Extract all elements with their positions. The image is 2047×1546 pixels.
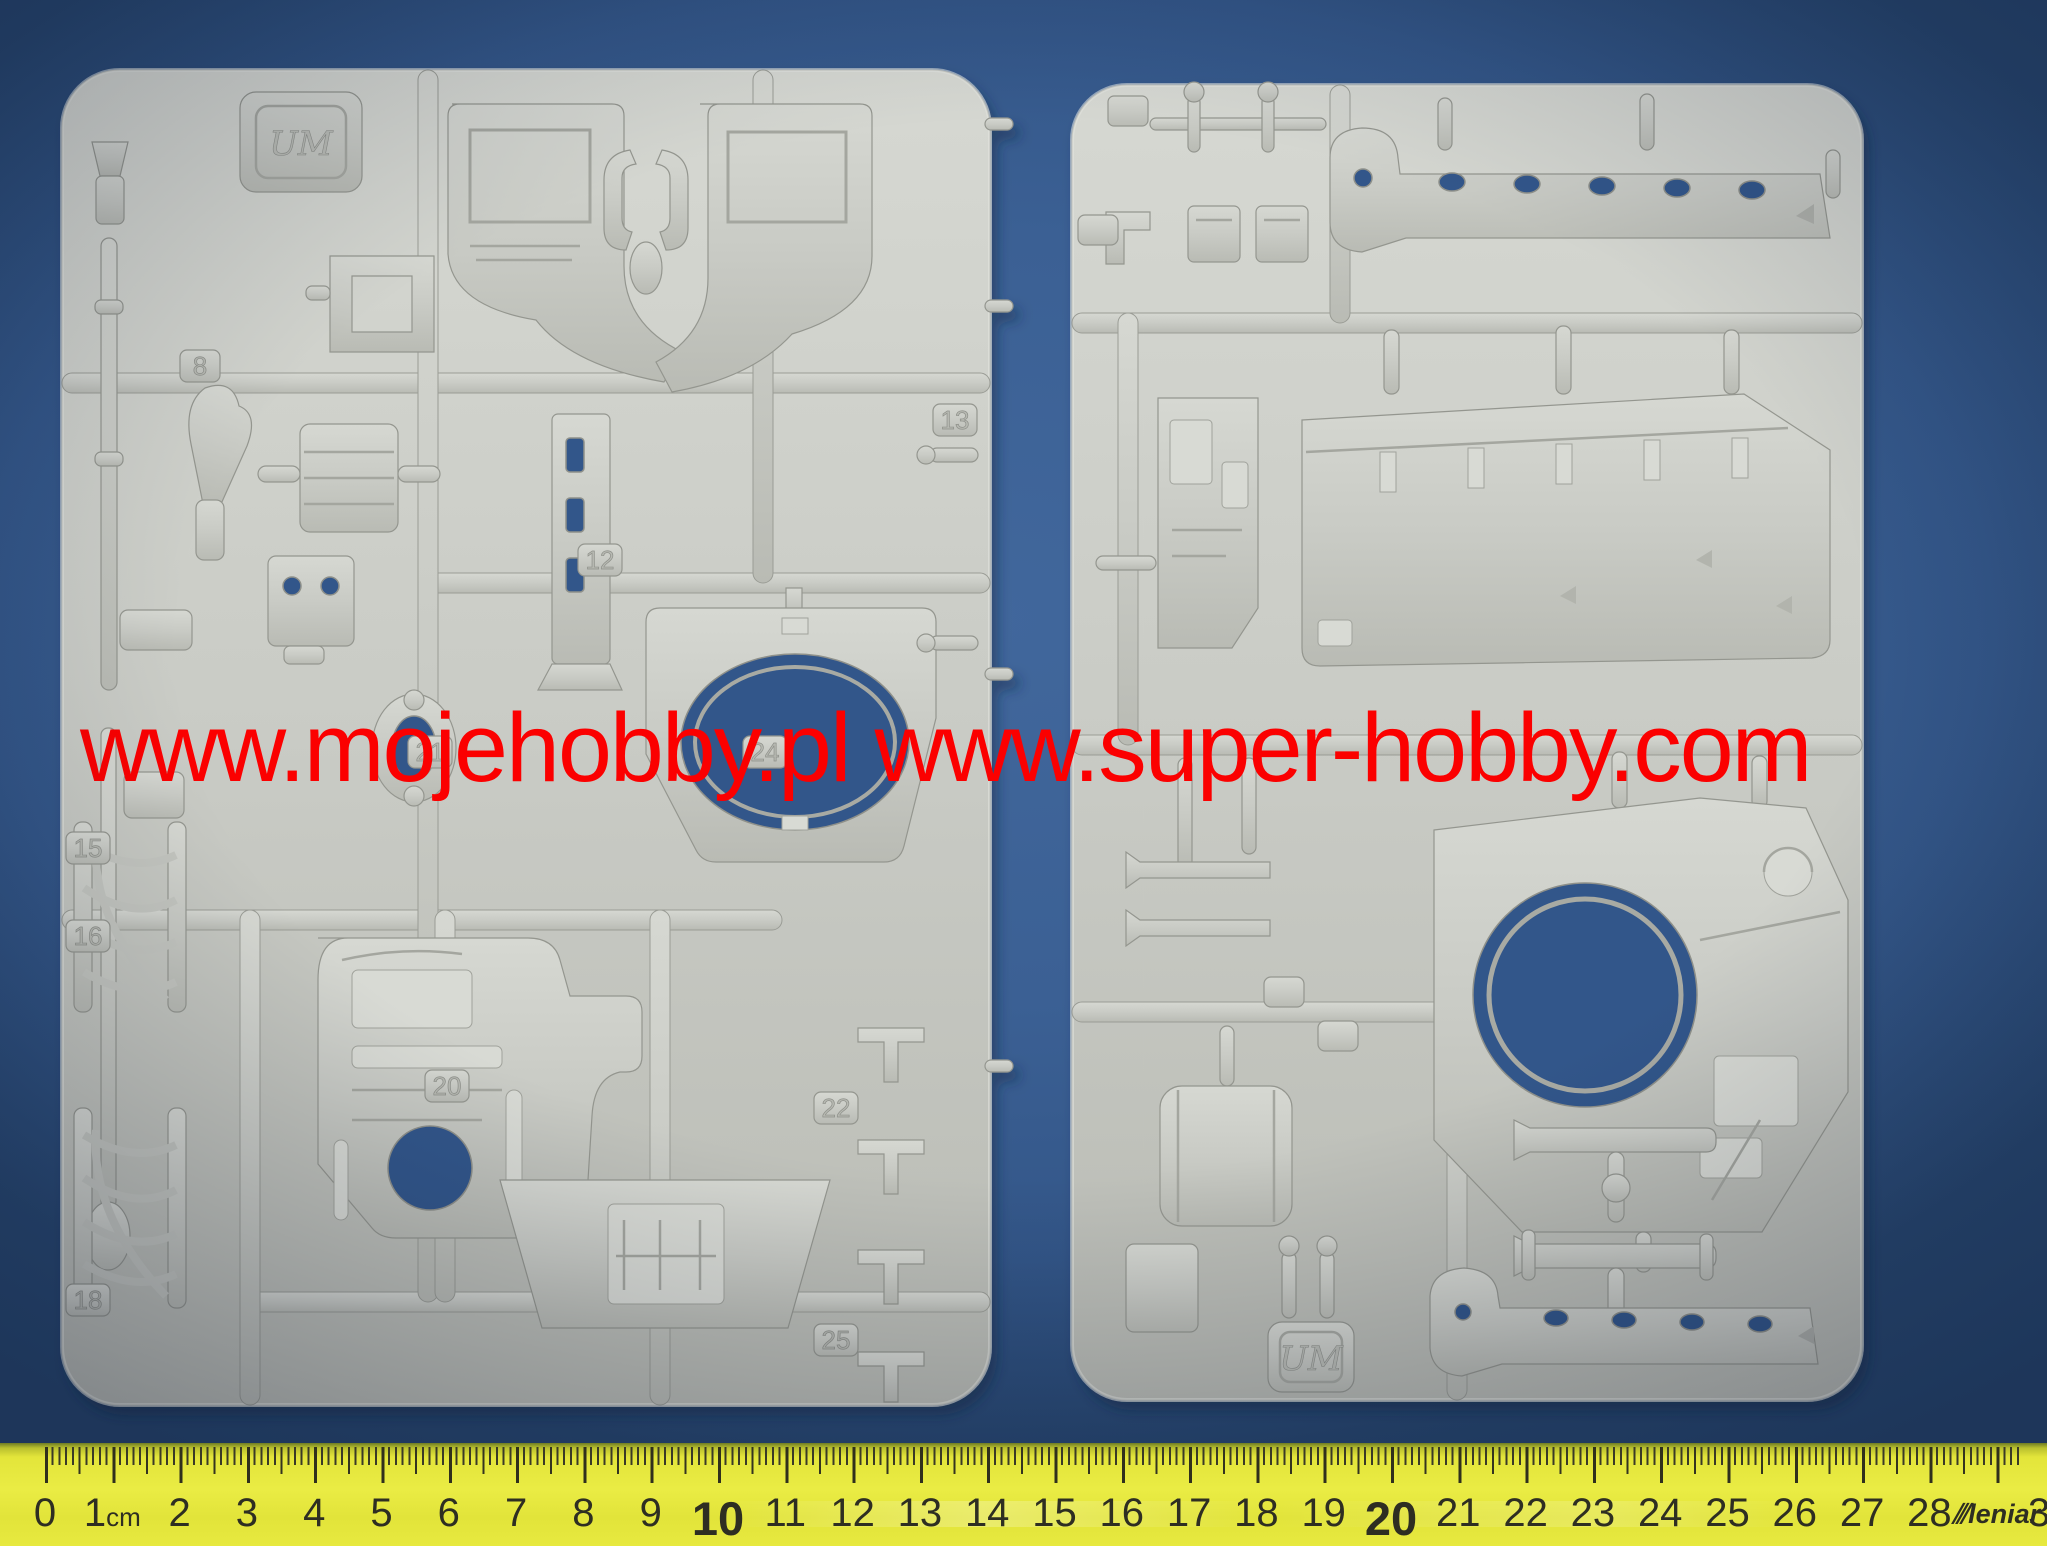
part-tag: 20 — [433, 1071, 462, 1101]
ruler-label: 28 — [1907, 1491, 1952, 1536]
ruler-label: 24 — [1638, 1491, 1683, 1536]
right-logo-tab: UM — [1268, 1322, 1354, 1392]
blank-tag — [1318, 1021, 1358, 1051]
ruler-label: 7 — [505, 1491, 527, 1536]
ruler-label: 3 — [236, 1491, 258, 1536]
ruler-label: 23 — [1571, 1491, 1616, 1536]
ruler-cm-ticks — [45, 1447, 2020, 1483]
ruler-label: 0 — [34, 1491, 56, 1536]
blank-tag — [1264, 977, 1304, 1007]
ruler-label: 15 — [1032, 1491, 1077, 1536]
part-tag: 15 — [74, 833, 103, 863]
glacis-plate-part — [500, 1180, 830, 1328]
ruler-label: 12 — [830, 1491, 875, 1536]
ruler-label: 19 — [1301, 1491, 1346, 1536]
part-tag: 22 — [822, 1093, 851, 1123]
left-molded-logo: UM — [269, 124, 334, 164]
ruler-label: 1cm — [84, 1491, 141, 1536]
ruler-label: 8 — [572, 1491, 594, 1536]
ruler-label: 25 — [1705, 1491, 1750, 1536]
ruler-label: 2 — [168, 1491, 190, 1536]
ruler-label: 13 — [898, 1491, 943, 1536]
part-tag: 18 — [74, 1285, 103, 1315]
ruler-label: 11 — [765, 1491, 807, 1536]
ruler-label: 10 — [692, 1491, 744, 1546]
ruler-label: 9 — [640, 1491, 662, 1536]
ruler-label: 17 — [1167, 1491, 1212, 1536]
part-tag: 8 — [193, 351, 207, 381]
ruler-label: 20 — [1365, 1491, 1417, 1546]
part-tag: 16 — [74, 921, 103, 951]
watermark-text: www.mojehobby.pl www.super-hobby.com — [80, 692, 1810, 804]
ruler-label: 27 — [1840, 1491, 1885, 1536]
turret-top-part — [1434, 752, 1848, 1272]
left-logo-tab: UM — [240, 92, 362, 192]
ruler-label: 18 — [1234, 1491, 1279, 1536]
part-tag: 12 — [586, 545, 615, 575]
ruler-label: 14 — [965, 1491, 1010, 1536]
ruler-label: 4 — [303, 1491, 325, 1536]
ruler-label: 21 — [1436, 1491, 1481, 1536]
ruler-label: 6 — [438, 1491, 460, 1536]
ruler-edge-digit: 3 — [2028, 1491, 2047, 1536]
blank-tag — [1078, 215, 1118, 245]
ruler-label: 26 — [1773, 1491, 1818, 1536]
ruler-label: 22 — [1503, 1491, 1548, 1536]
part-tag: 13 — [941, 405, 970, 435]
ruler-label: 5 — [370, 1491, 392, 1536]
ruler-brand-logo: ⫻leniar — [1952, 1499, 2040, 1531]
ruler: 01cm234567891011121314151617181920212223… — [0, 1443, 2047, 1546]
sprue-photo: UM — [0, 0, 2047, 1546]
ruler-label: 16 — [1100, 1491, 1145, 1536]
part-tag: 25 — [822, 1325, 851, 1355]
right-molded-logo: UM — [1279, 1339, 1344, 1379]
